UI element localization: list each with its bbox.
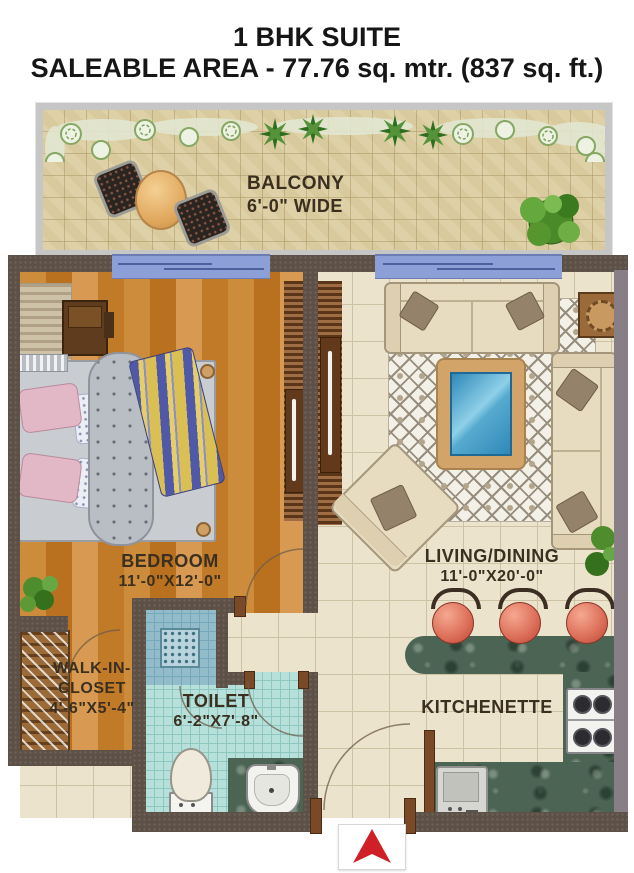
balcony-tree — [509, 188, 593, 250]
toilet-door-post — [298, 671, 309, 689]
bar-stool — [498, 588, 542, 640]
living-dining-label: LIVING/DINING 11'-0"X20'-0" — [425, 546, 560, 587]
kitchen-sink-icon — [436, 766, 488, 818]
bed-pillow-pink — [17, 382, 83, 434]
plan-title-line1: 1 BHK SUITE — [0, 22, 634, 53]
bedpost — [200, 364, 215, 379]
toilet-label: TOILET 6'-2"X7'-8" — [173, 691, 258, 732]
wall-toilet-top — [216, 672, 246, 685]
wall-right — [614, 270, 628, 818]
wall-bottom-right-of-entrance — [405, 812, 628, 832]
wall-bottom-left-of-entrance — [132, 812, 320, 832]
closet-name-line2: CLOSET — [49, 679, 134, 699]
plant-icon — [16, 570, 66, 618]
entrance-door-leaf — [424, 730, 435, 816]
stove-icon — [566, 688, 617, 754]
entrance-door-post — [310, 798, 322, 834]
toilet-name: TOILET — [173, 691, 258, 712]
kitchenette-name: KITCHENETTE — [421, 697, 553, 718]
sofa-right — [551, 352, 618, 550]
sofa-pillow — [505, 291, 546, 332]
coffee-table — [436, 358, 526, 470]
bed-pillow-pink — [17, 452, 83, 504]
sofa-top — [384, 282, 560, 354]
toilet-door-post — [244, 671, 255, 689]
closet-name-line1: WALK-IN- — [49, 659, 134, 679]
bed — [18, 352, 214, 544]
bedpost — [196, 522, 211, 537]
bedroom-door-post — [234, 596, 246, 617]
sliding-door-living — [375, 254, 562, 279]
wc-toilet-icon — [166, 748, 212, 820]
wall-left — [8, 255, 20, 765]
bedroom-dimensions: 11'-0"X12'-0" — [118, 572, 221, 592]
sofa-pillow — [555, 368, 600, 413]
walk-in-closet-label: WALK-IN- CLOSET 4'-6"X5'-4" — [49, 659, 134, 719]
entrance-arrow-icon — [339, 825, 405, 869]
shower-drain-icon — [160, 628, 200, 668]
balcony-name: BALCONY — [247, 172, 344, 195]
balcony-label: BALCONY 6'-0" WIDE — [247, 172, 344, 218]
wall-closet-stub — [20, 616, 68, 632]
balcony-dimensions: 6'-0" WIDE — [247, 195, 344, 218]
balcony-room: BALCONY 6'-0" WIDE — [36, 103, 612, 257]
plan-title: 1 BHK SUITE SALEABLE AREA - 77.76 sq. mt… — [0, 22, 634, 84]
coffee-table-glass — [450, 372, 512, 456]
bar-stool — [431, 588, 475, 640]
bedroom-wardrobe — [284, 281, 305, 521]
bed-headboard — [18, 354, 68, 372]
wall-shower-top — [132, 598, 228, 610]
bedroom-name: BEDROOM — [118, 551, 221, 572]
dresser — [62, 300, 108, 356]
living-cabinet — [318, 281, 342, 525]
sofa-pillow — [398, 290, 439, 331]
wall-bedroom-living-divider — [303, 270, 318, 613]
living-dining-name: LIVING/DINING — [425, 546, 560, 567]
kitchenette-label: KITCHENETTE — [421, 697, 553, 718]
living-dining-dimensions: 11'-0"X20'-0" — [425, 567, 560, 587]
bedroom-label: BEDROOM 11'-0"X12'-0" — [118, 551, 221, 592]
wall-toilet-right — [303, 672, 318, 812]
wash-basin-icon — [246, 764, 300, 816]
dresser-stool — [104, 312, 114, 338]
balcony-plants-garland — [43, 110, 605, 162]
floor-plan: 1 BHK SUITE SALEABLE AREA - 77.76 sq. mt… — [0, 0, 634, 873]
sliding-door-bedroom — [112, 254, 270, 279]
bar-stool — [565, 588, 609, 640]
toilet-dimensions: 6'-2"X7'-8" — [173, 712, 258, 732]
entrance-marker — [338, 824, 406, 870]
wall-closet-bottom — [8, 750, 140, 766]
closet-dimensions: 4'-6"X5'-4" — [49, 699, 134, 719]
plan-title-line2: SALEABLE AREA - 77.76 sq. mtr. (837 sq. … — [0, 53, 634, 84]
